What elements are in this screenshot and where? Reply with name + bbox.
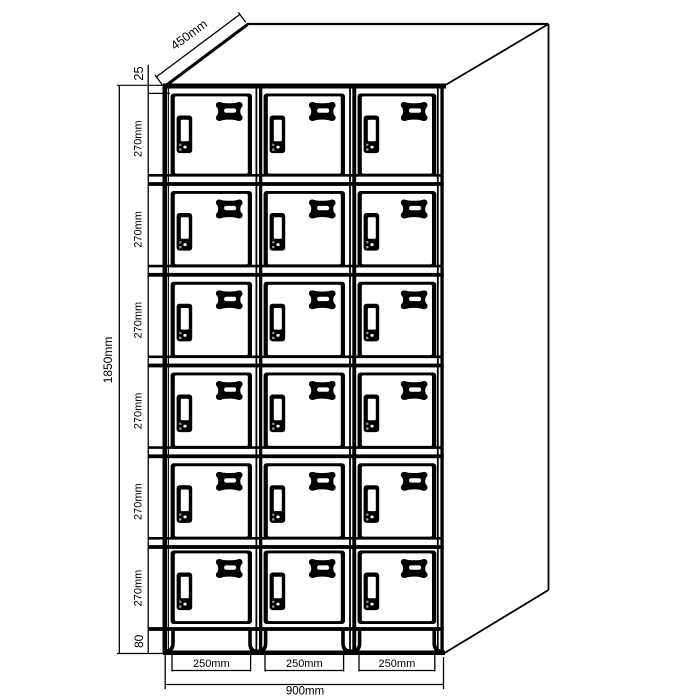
svg-text:1850mm: 1850mm [101,337,115,384]
svg-text:270mm: 270mm [132,120,144,157]
svg-text:250mm: 250mm [379,658,416,670]
svg-text:250mm: 250mm [193,658,230,670]
svg-text:270mm: 270mm [132,211,144,248]
svg-text:270mm: 270mm [132,483,144,520]
svg-text:900mm: 900mm [286,686,324,698]
svg-text:270mm: 270mm [132,302,144,339]
svg-text:270mm: 270mm [132,570,144,607]
svg-text:80: 80 [132,634,146,648]
svg-text:250mm: 250mm [286,658,323,670]
svg-text:270mm: 270mm [132,393,144,430]
svg-text:25: 25 [131,66,146,80]
svg-text:450mm: 450mm [168,17,210,53]
